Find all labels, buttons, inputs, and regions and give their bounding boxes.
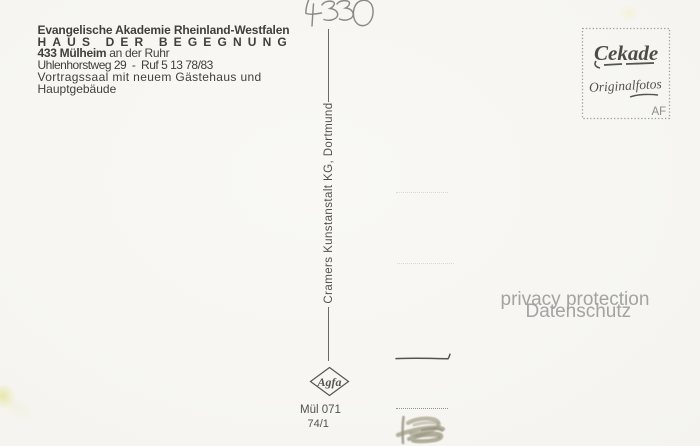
svg-text:Agfa: Agfa	[317, 375, 342, 389]
